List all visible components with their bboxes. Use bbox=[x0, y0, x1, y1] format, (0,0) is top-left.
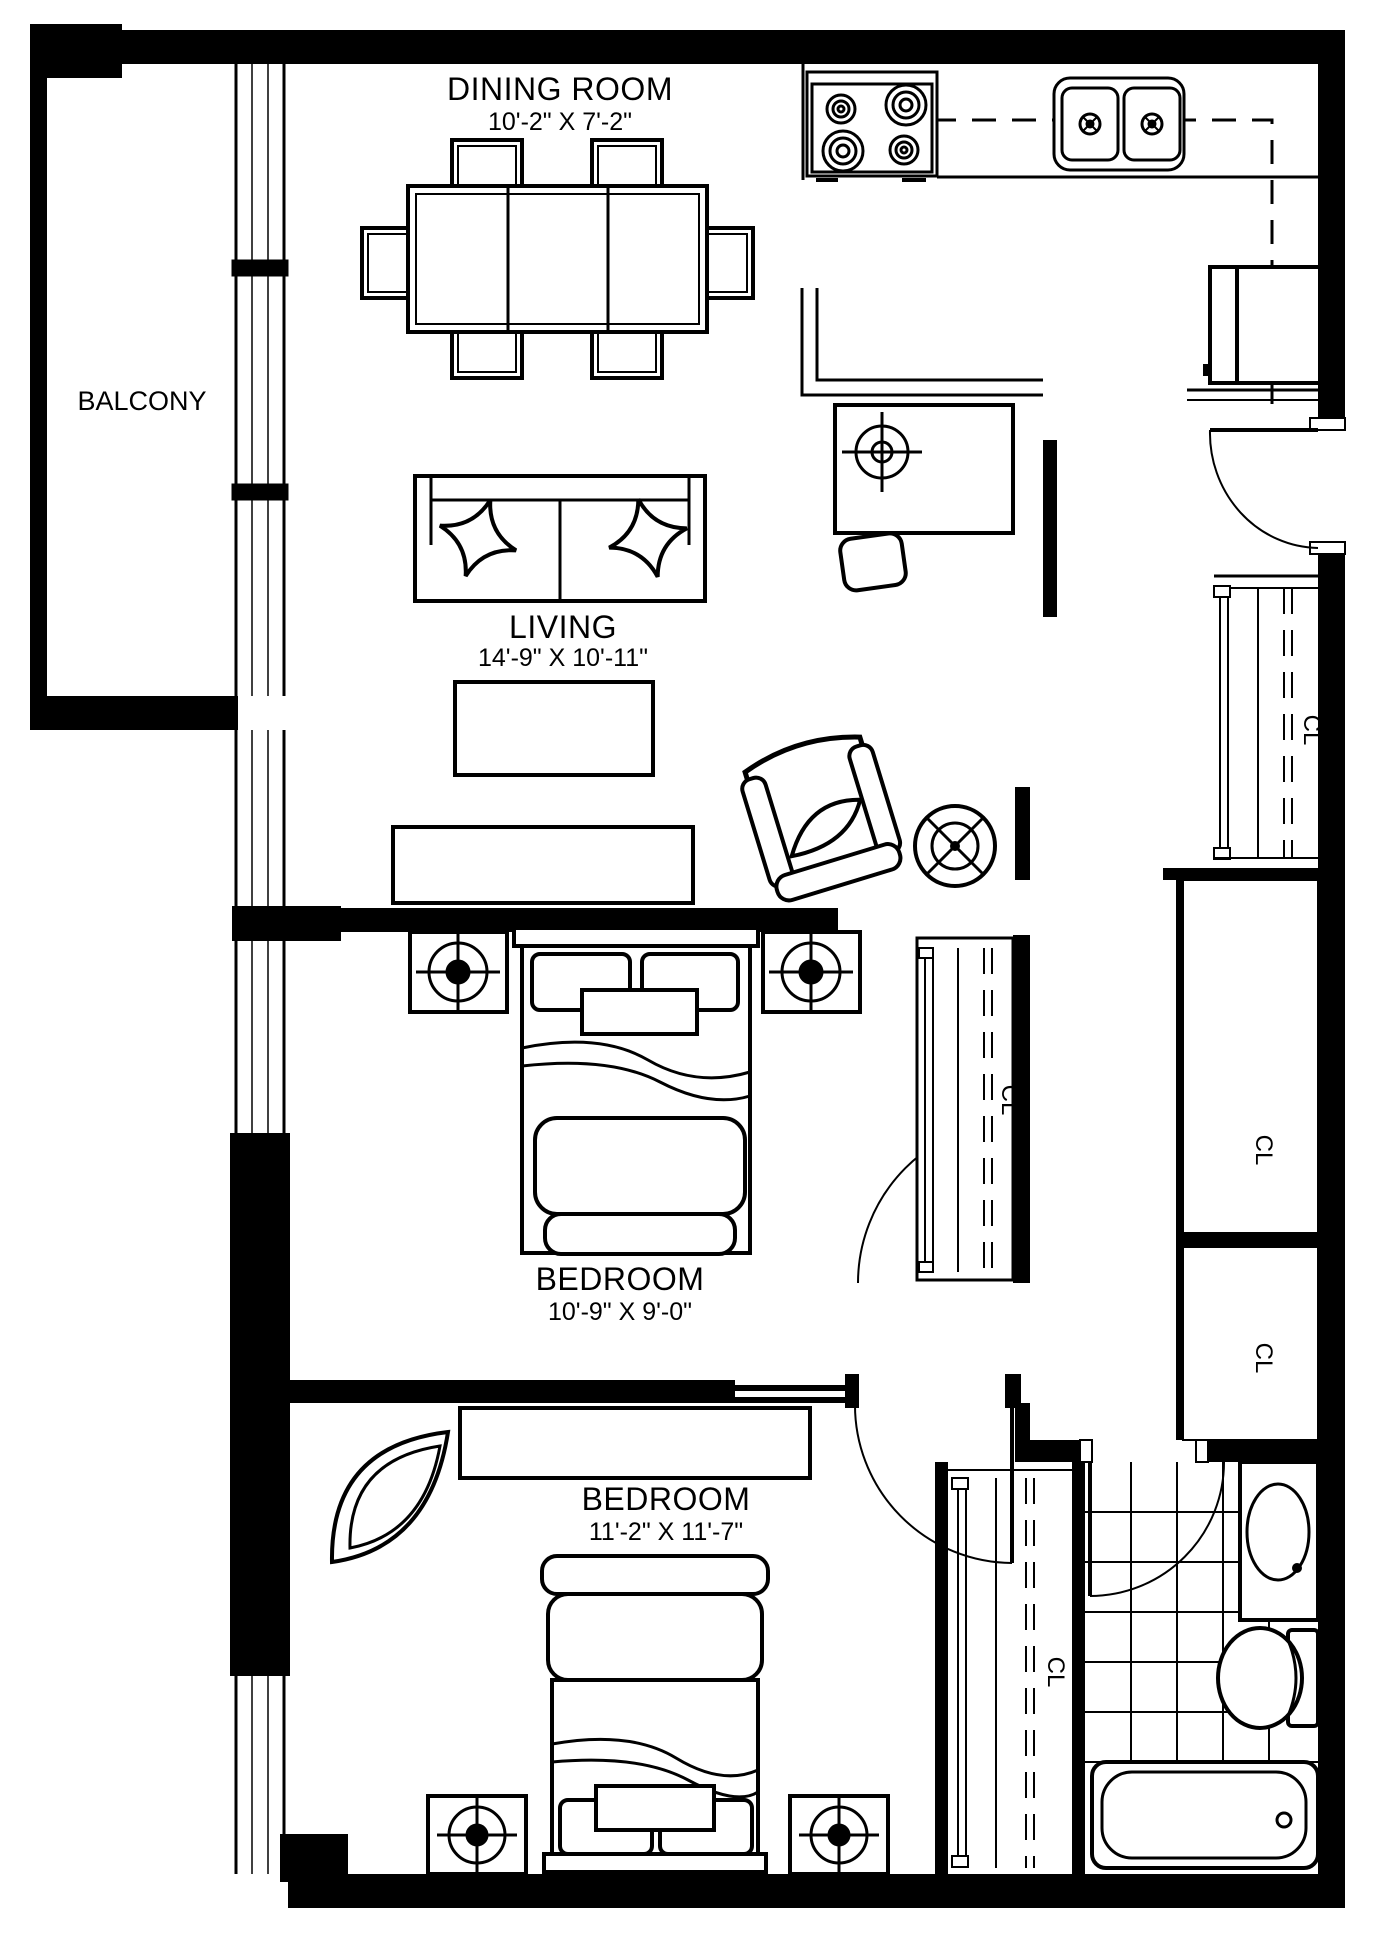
window-strip-living bbox=[236, 730, 284, 906]
bedroom-2: BEDROOM 11'-2" X 11'-7" bbox=[332, 1408, 888, 1875]
living-room: LIVING 14'-9" X 10'-11" bbox=[393, 476, 995, 905]
headboard bbox=[514, 928, 758, 946]
kitchen bbox=[802, 64, 1323, 592]
window-strip-balcony bbox=[232, 62, 288, 696]
stove bbox=[807, 72, 937, 180]
dining-room-label: DINING ROOM bbox=[447, 71, 673, 107]
bathtub bbox=[1092, 1762, 1318, 1868]
desk-chair bbox=[839, 532, 908, 592]
refrigerator bbox=[1203, 267, 1320, 383]
kitchen-sink bbox=[1054, 78, 1184, 170]
bedroom2-closet-label: CL bbox=[1042, 1657, 1069, 1688]
plant-icon bbox=[332, 1432, 448, 1562]
toilet bbox=[1218, 1628, 1318, 1728]
kitchen-peninsula bbox=[802, 288, 1043, 395]
floor-plan: DINING ROOM 10'-2" X 7'-2" BALCONY bbox=[0, 0, 1385, 1953]
coffee-table bbox=[455, 682, 653, 775]
balcony-wall-left bbox=[30, 62, 47, 702]
dining-table bbox=[408, 186, 707, 332]
bedroom1-dimensions: 10'-9" X 9'-0" bbox=[548, 1298, 692, 1326]
kitchen-wall-stub bbox=[1043, 440, 1057, 617]
bedroom1-label: BEDROOM bbox=[536, 1261, 705, 1297]
living-room-dimensions: 14'-9" X 10'-11" bbox=[478, 644, 648, 672]
living-room-label: LIVING bbox=[509, 609, 617, 645]
balcony: BALCONY bbox=[77, 386, 206, 416]
folded-blanket bbox=[596, 1786, 714, 1830]
sofa bbox=[415, 476, 705, 601]
bedroom2-door bbox=[855, 1403, 1012, 1563]
dresser bbox=[460, 1408, 810, 1478]
bathroom-door bbox=[1080, 1440, 1224, 1596]
window-strip-bedroom1 bbox=[236, 941, 284, 1133]
tv-console bbox=[393, 827, 693, 903]
duvet-foot bbox=[542, 1556, 768, 1594]
balcony-label: BALCONY bbox=[77, 386, 206, 416]
dining-room: DINING ROOM 10'-2" X 7'-2" bbox=[362, 71, 753, 378]
bedroom2-dimensions: 11'-2" X 11'-7" bbox=[589, 1518, 743, 1546]
bed bbox=[542, 1556, 768, 1872]
wall-corner-bottom-left bbox=[280, 1834, 348, 1882]
armchair bbox=[735, 725, 908, 904]
closets-right: CL CL CL bbox=[1183, 576, 1325, 1440]
bedroom1-closet: CL bbox=[917, 938, 1023, 1280]
duvet bbox=[535, 1118, 745, 1214]
bedroom-1: BEDROOM 10'-9" X 9'-0" CL bbox=[410, 928, 1023, 1326]
bedroom2-label: BEDROOM bbox=[582, 1481, 751, 1517]
hall-closet-upper-label: CL bbox=[1250, 1135, 1277, 1166]
side-table bbox=[915, 806, 995, 886]
hall-closet-upper: CL bbox=[1183, 880, 1318, 1233]
entry-door bbox=[1210, 418, 1345, 554]
hall-closet-lower-label: CL bbox=[1250, 1343, 1277, 1374]
hall-closet-lower: CL bbox=[1183, 1247, 1318, 1440]
window-strip-bedroom2 bbox=[236, 1676, 284, 1874]
headboard bbox=[544, 1854, 766, 1872]
entry-closet-label: CL bbox=[1298, 715, 1325, 746]
bathroom-sink bbox=[1240, 1462, 1318, 1620]
dining-room-dimensions: 10'-2" X 7'-2" bbox=[488, 108, 632, 136]
duvet-foot bbox=[545, 1214, 735, 1254]
entry-closet: CL bbox=[1214, 576, 1325, 859]
folded-blanket bbox=[582, 990, 697, 1034]
bed bbox=[514, 928, 758, 1254]
bedroom1-closet-label: CL bbox=[996, 1085, 1023, 1116]
duvet bbox=[548, 1594, 762, 1680]
hall-table bbox=[835, 405, 1013, 533]
bathroom bbox=[1085, 1462, 1318, 1868]
balcony-wall-bottom bbox=[30, 696, 238, 730]
